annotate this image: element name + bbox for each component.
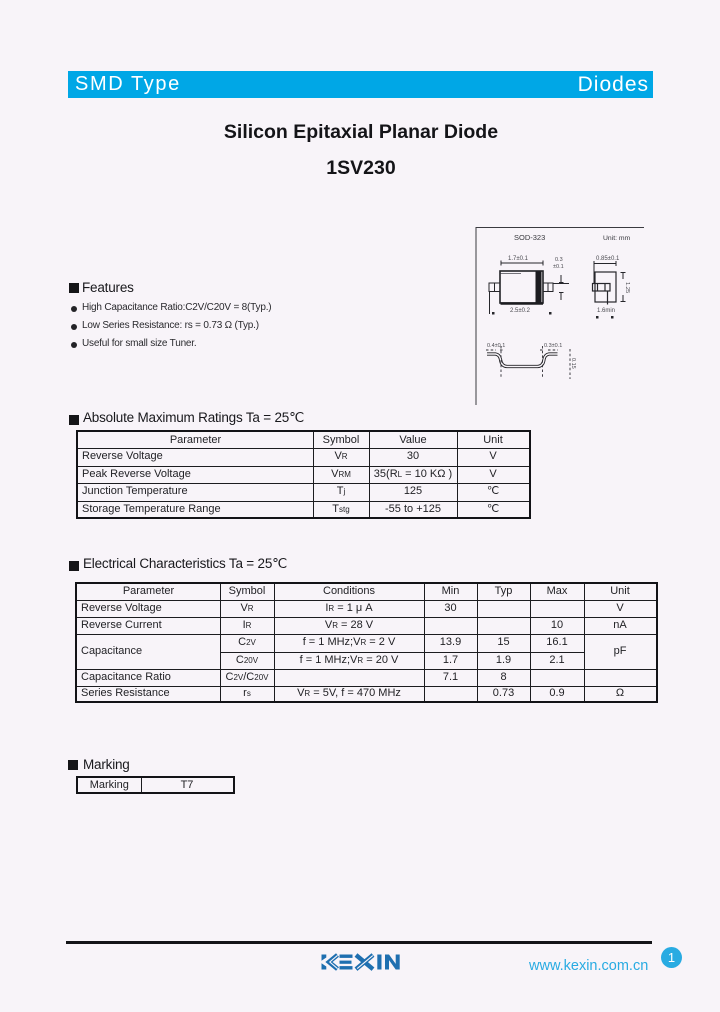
svg-text:0.3±0.1: 0.3±0.1 — [544, 343, 562, 349]
svg-text:0.85±0.1: 0.85±0.1 — [596, 256, 620, 262]
svg-text:0.3: 0.3 — [555, 257, 563, 263]
svg-text:2.5±0.2: 2.5±0.2 — [510, 308, 531, 314]
svg-text:1.25: 1.25 — [624, 282, 630, 293]
svg-text:1.6min: 1.6min — [597, 308, 615, 314]
svg-text:±0.1: ±0.1 — [553, 264, 564, 270]
svg-text:1.7±0.1: 1.7±0.1 — [508, 256, 529, 262]
svg-text:Unit: mm: Unit: mm — [603, 235, 631, 242]
svg-text:SOD-323: SOD-323 — [514, 233, 545, 242]
svg-text:0.15: 0.15 — [570, 358, 576, 369]
svg-text:0.4±0.1: 0.4±0.1 — [487, 343, 505, 349]
